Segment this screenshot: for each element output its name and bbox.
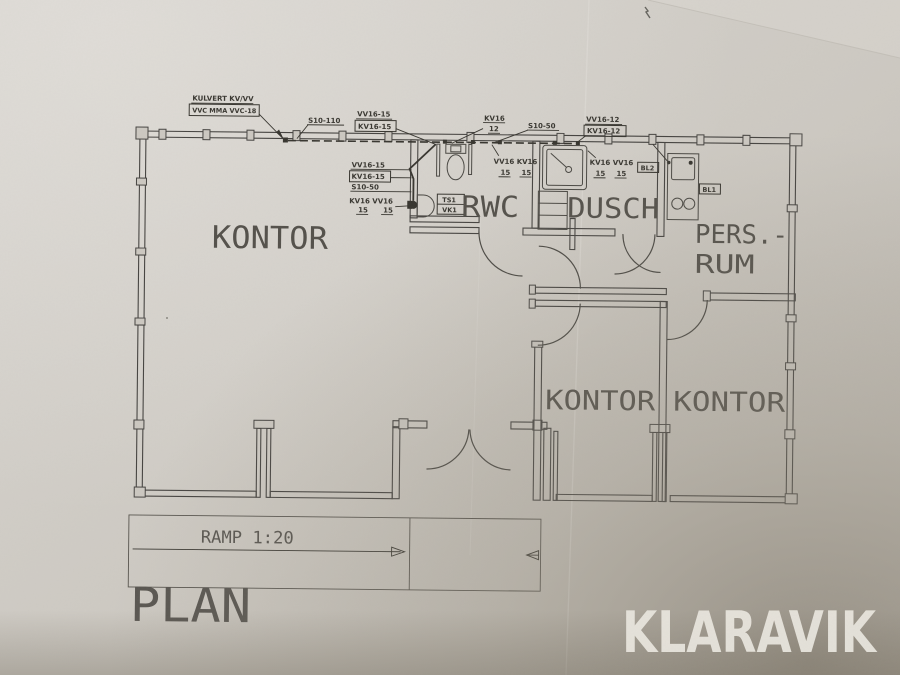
paper-grain — [0, 0, 900, 675]
floor-plan-photo: KULVERT KV/VV VVC MMA VVC-18 S10-110 VV1… — [0, 0, 900, 675]
floor-plan-svg: KULVERT KV/VV VVC MMA VVC-18 S10-110 VV1… — [0, 0, 900, 675]
